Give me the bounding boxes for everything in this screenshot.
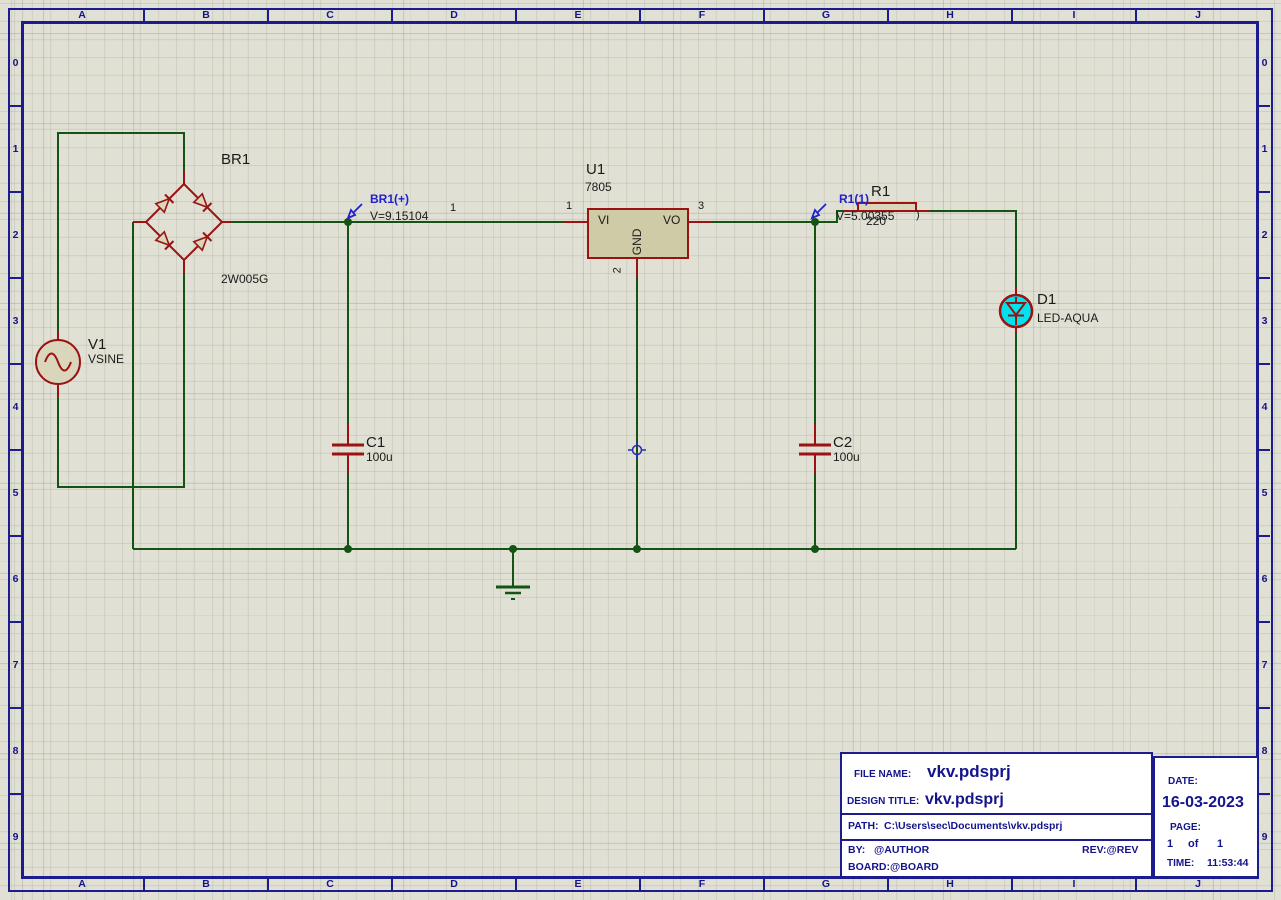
br1-value-label[interactable]: 2W005G bbox=[221, 273, 268, 287]
by-label: BY: bbox=[848, 844, 865, 856]
c1-symbol[interactable] bbox=[332, 424, 364, 474]
probe-br1-value: V=9.15104 bbox=[370, 210, 428, 224]
c2-value-label[interactable]: 100u bbox=[833, 451, 860, 465]
d1-symbol[interactable] bbox=[1000, 288, 1032, 334]
u1-value-label[interactable]: 7805 bbox=[585, 181, 612, 195]
file-name-label: FILE NAME: bbox=[854, 769, 911, 781]
junction-dots bbox=[344, 218, 819, 553]
page-total: 1 bbox=[1217, 838, 1223, 851]
probe-arrow-icon[interactable] bbox=[348, 204, 362, 218]
r1-ref-label[interactable]: R1 bbox=[871, 183, 890, 200]
time-value: 11:53:44 bbox=[1207, 857, 1248, 869]
board-value: @BOARD bbox=[890, 861, 939, 873]
title-block: FILE NAME: vkv.pdsprj DESIGN TITLE: vkv.… bbox=[840, 752, 1153, 878]
r1-pin-mark: ) bbox=[916, 209, 920, 222]
br1-pin1-label: 1 bbox=[450, 202, 456, 215]
ground-symbol[interactable] bbox=[496, 587, 530, 599]
wire-v1-bottom-to-bridge bbox=[58, 273, 184, 487]
board-label: BOARD: bbox=[848, 861, 890, 873]
c2-ref-label[interactable]: C2 bbox=[833, 434, 852, 451]
u1-pin2-number: 2 bbox=[612, 267, 625, 273]
rev-value: REV:@REV bbox=[1082, 844, 1138, 856]
page-number: 1 bbox=[1167, 838, 1173, 851]
u1-pin-vi-label: VI bbox=[598, 214, 609, 228]
u1-pin-gnd-label: GND bbox=[631, 222, 645, 262]
title-block-date-page: DATE: 16-03-2023 PAGE: 1 of 1 TIME: 11:5… bbox=[1153, 756, 1259, 878]
v1-value-label[interactable]: VSINE bbox=[88, 353, 124, 367]
u1-ref-label[interactable]: U1 bbox=[586, 161, 605, 178]
design-title-label: DESIGN TITLE: bbox=[847, 796, 919, 808]
by-value: @AUTHOR bbox=[874, 844, 929, 856]
d1-value-label[interactable]: LED-AQUA bbox=[1037, 312, 1098, 326]
probe-br1-label[interactable]: BR1(+) bbox=[370, 193, 409, 207]
path-value: C:\Users\sec\Documents\vkv.pdsprj bbox=[884, 820, 1062, 832]
d1-ref-label[interactable]: D1 bbox=[1037, 291, 1056, 308]
design-title-value: vkv.pdsprj bbox=[925, 791, 1004, 809]
v1-ref-label[interactable]: V1 bbox=[88, 336, 106, 353]
date-label: DATE: bbox=[1168, 776, 1198, 788]
br1-symbol[interactable] bbox=[133, 172, 232, 273]
schematic-canvas[interactable]: ABCDEFGHIJ ABCDEFGHIJ 0123456789 0123456… bbox=[0, 0, 1281, 900]
probe-r1-label[interactable]: R1(1) bbox=[839, 193, 869, 207]
c1-value-label[interactable]: 100u bbox=[366, 451, 393, 465]
file-name-value: vkv.pdsprj bbox=[927, 762, 1011, 782]
date-value: 16-03-2023 bbox=[1162, 794, 1244, 812]
wire-r1-to-d1 bbox=[929, 211, 1016, 288]
title-block-divider bbox=[842, 839, 1151, 841]
title-block-divider bbox=[842, 813, 1151, 815]
probe-r1-value: V=5.00355 bbox=[836, 210, 894, 224]
u1-pin1-number: 1 bbox=[566, 200, 572, 213]
u1-pin-vo-label: VO bbox=[663, 214, 680, 228]
u1-pin3-number: 3 bbox=[698, 200, 704, 213]
probe-arrow-icon[interactable] bbox=[812, 204, 826, 218]
page-of: of bbox=[1188, 838, 1198, 851]
v1-symbol[interactable] bbox=[36, 332, 80, 398]
page-label: PAGE: bbox=[1170, 822, 1201, 834]
path-label: PATH: bbox=[848, 820, 879, 832]
br1-ref-label[interactable]: BR1 bbox=[221, 151, 250, 168]
time-label: TIME: bbox=[1167, 858, 1194, 870]
c2-symbol[interactable] bbox=[799, 424, 831, 474]
c1-ref-label[interactable]: C1 bbox=[366, 434, 385, 451]
